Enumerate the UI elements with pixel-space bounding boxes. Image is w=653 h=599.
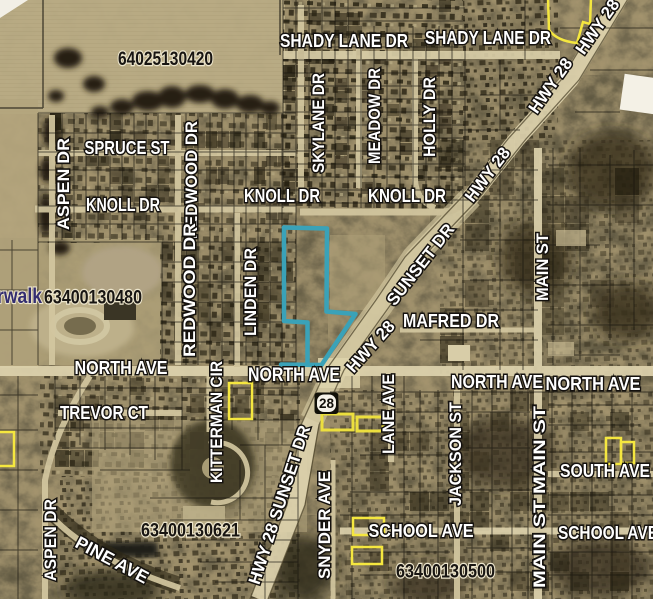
- svg-text:KNOLL DR: KNOLL DR: [244, 186, 320, 206]
- svg-text:SPRUCE ST: SPRUCE ST: [85, 138, 170, 158]
- svg-text:63400130621: 63400130621: [141, 521, 240, 542]
- svg-text:SKYLANE DR: SKYLANE DR: [309, 73, 328, 173]
- svg-text:SHADY LANE DR: SHADY LANE DR: [425, 28, 551, 48]
- svg-text:MAIN ST MAIN ST: MAIN ST MAIN ST: [530, 405, 549, 588]
- svg-text:rwalk: rwalk: [0, 285, 42, 308]
- svg-text:TREVOR CT: TREVOR CT: [60, 403, 148, 423]
- svg-text:64025130420: 64025130420: [118, 49, 213, 70]
- svg-text:LINDEN DR: LINDEN DR: [241, 248, 260, 336]
- svg-text:KNOLL DR: KNOLL DR: [86, 195, 160, 215]
- svg-text:REDWOOD DR: REDWOOD DR: [180, 223, 199, 357]
- svg-text:REDWOOD DR: REDWOOD DR: [182, 121, 201, 239]
- svg-text:HOLLY DR: HOLLY DR: [420, 77, 439, 157]
- svg-text:ASPEN DR: ASPEN DR: [41, 499, 60, 581]
- svg-text:ASPEN DR: ASPEN DR: [54, 138, 73, 230]
- svg-text:SNYDER AVE: SNYDER AVE: [315, 471, 334, 579]
- svg-text:LANE AVE: LANE AVE: [379, 374, 398, 454]
- svg-text:KITTERMAN CIR: KITTERMAN CIR: [207, 361, 226, 483]
- svg-text:NORTH AVE: NORTH AVE: [248, 365, 340, 386]
- svg-text:NORTH AVE: NORTH AVE: [546, 374, 641, 394]
- svg-text:SCHOOL AVE: SCHOOL AVE: [558, 523, 653, 543]
- svg-text:63400130500: 63400130500: [396, 562, 495, 583]
- svg-text:MEADOW DR: MEADOW DR: [365, 68, 384, 164]
- svg-text:28: 28: [319, 396, 335, 411]
- svg-text:SHADY LANE DR: SHADY LANE DR: [280, 31, 408, 51]
- svg-text:JACKSON ST: JACKSON ST: [446, 401, 465, 506]
- svg-text:NORTH AVE: NORTH AVE: [75, 358, 168, 378]
- svg-text:SCHOOL AVE: SCHOOL AVE: [369, 521, 474, 541]
- svg-text:MAIN ST: MAIN ST: [533, 232, 552, 301]
- svg-text:63400130480: 63400130480: [44, 288, 142, 309]
- svg-text:KNOLL DR: KNOLL DR: [368, 186, 446, 206]
- svg-text:MAFRED DR: MAFRED DR: [403, 311, 499, 331]
- svg-text:NORTH AVE: NORTH AVE: [451, 372, 543, 392]
- svg-text:SOUTH AVE: SOUTH AVE: [560, 461, 650, 481]
